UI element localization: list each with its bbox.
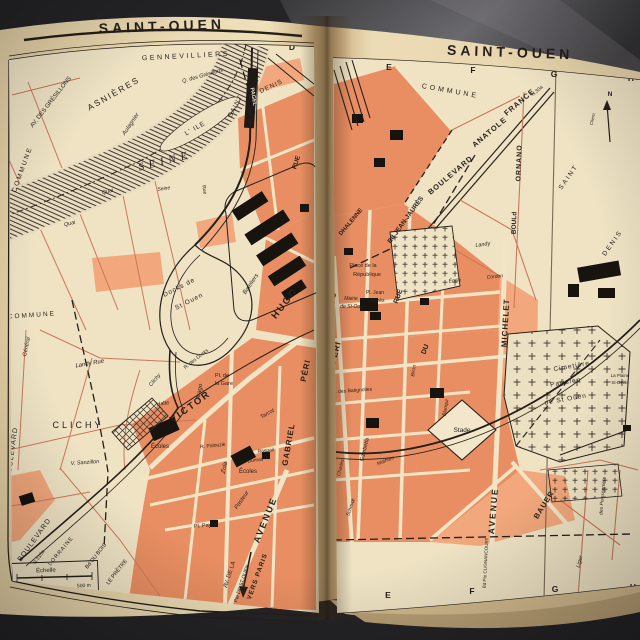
photo-of-open-map-book: { "book": { "left_page_title": "SAINT-OU… <box>0 0 640 640</box>
photo-vignette <box>0 0 640 640</box>
map-photo-canvas: SAINT-OUEN <box>0 0 640 640</box>
